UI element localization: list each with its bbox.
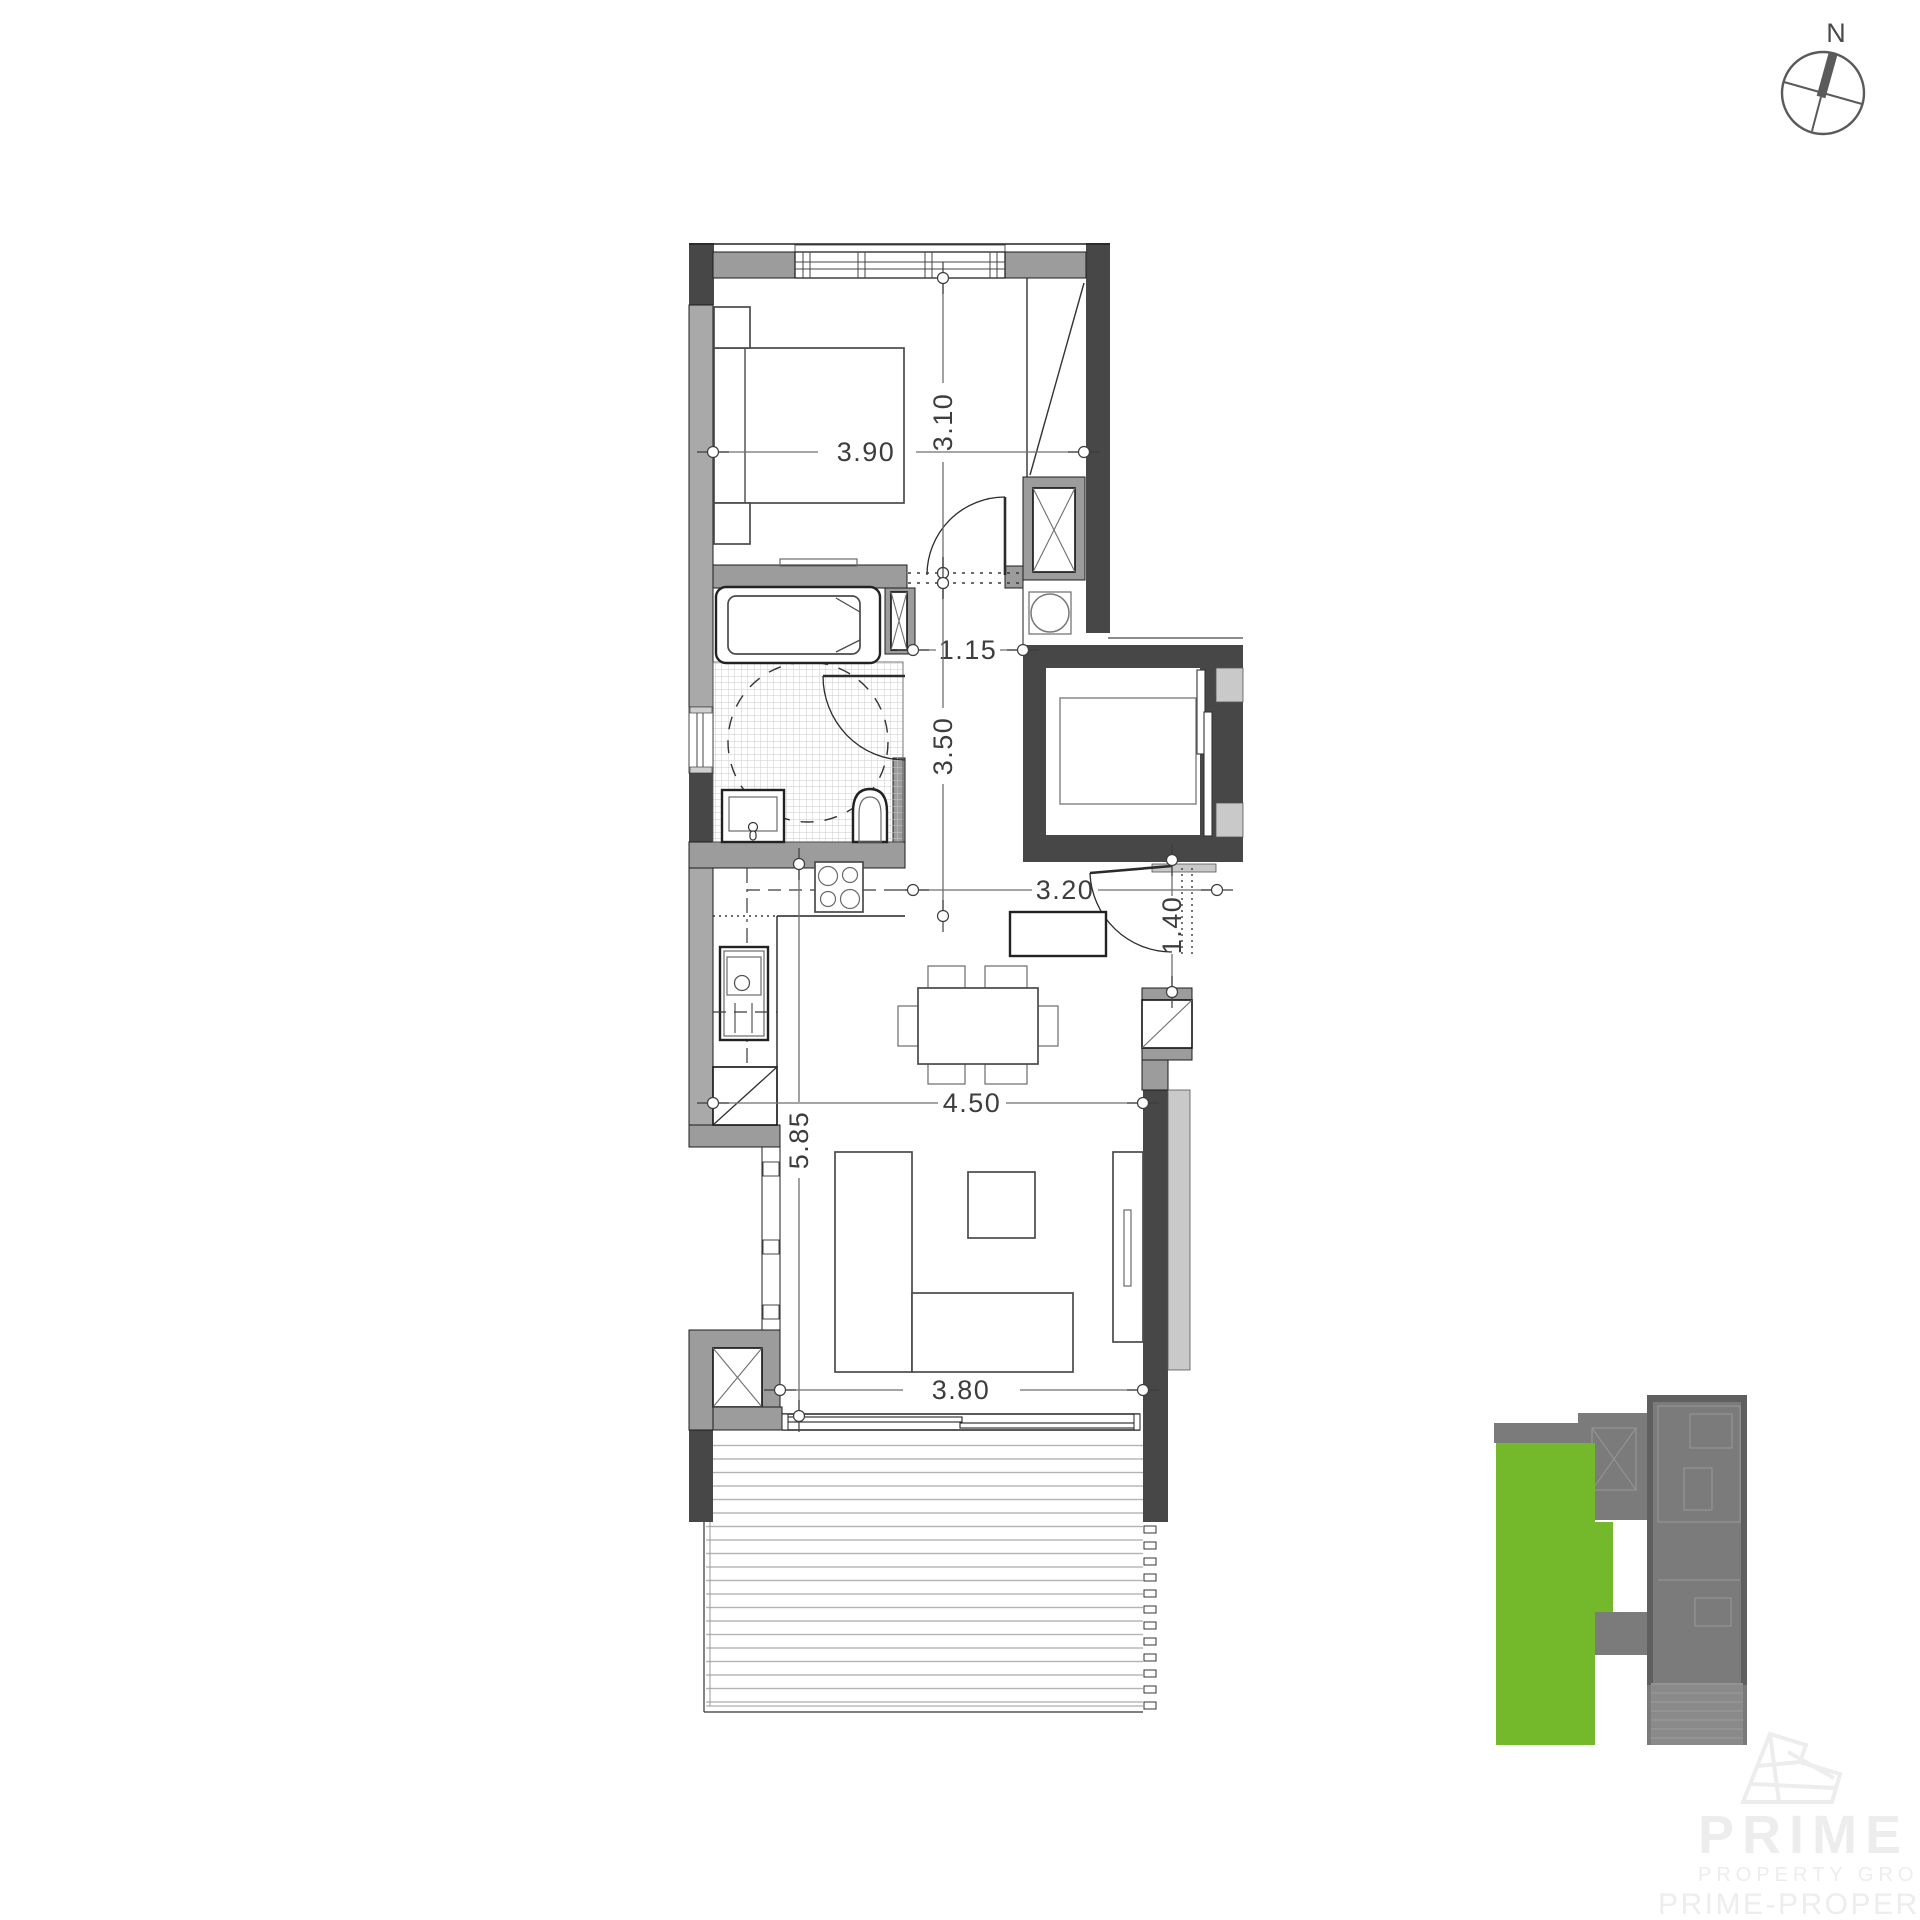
dim-hall-width: 1.15 <box>897 635 1039 665</box>
balcony <box>704 1433 1156 1712</box>
entry-shaft <box>1142 1000 1192 1048</box>
svg-text:3.20: 3.20 <box>1036 875 1095 905</box>
chair <box>928 966 965 988</box>
prime-logo-watermark: PRIME PROPERTY GROUP PRIME-PROPERTY.COM <box>1658 1734 1920 1920</box>
chair <box>985 966 1027 988</box>
prime-building-icon <box>1743 1734 1840 1802</box>
chair <box>1038 1006 1058 1046</box>
toilet <box>853 789 887 842</box>
laundry-niche <box>1023 582 1071 645</box>
dim-hall-depth: 3.50 <box>928 567 958 932</box>
balcony-decking <box>706 1524 1143 1706</box>
elevator-shaft-left <box>713 1348 762 1407</box>
kitchen <box>713 862 913 1125</box>
wardrobe <box>1027 278 1084 477</box>
kitchen-sink <box>713 947 777 1040</box>
sideboard <box>1010 912 1106 956</box>
elevator <box>1023 638 1243 862</box>
unit-locator-map <box>1494 1395 1747 1745</box>
brand-website: PRIME-PROPERTY.COM <box>1658 1888 1920 1920</box>
washing-machine-icon <box>1031 594 1069 632</box>
svg-text:4.50: 4.50 <box>943 1088 1002 1118</box>
floor-plan-sheet: N <box>0 0 1920 1920</box>
neighbor-void <box>762 1147 780 1330</box>
hob-icon <box>815 862 863 912</box>
bathtub <box>716 587 880 663</box>
bed <box>714 348 904 503</box>
sofa <box>835 1152 912 1372</box>
bedroom-window <box>795 245 1005 278</box>
elevator-shaft-small <box>1023 477 1085 580</box>
bathroom-window <box>689 707 713 773</box>
svg-text:3.90: 3.90 <box>837 437 896 467</box>
chair <box>985 1064 1027 1084</box>
balcony-sliding-door <box>713 1407 1140 1430</box>
dining-table <box>918 988 1038 1064</box>
dim-bedroom-depth: 3.10 <box>928 262 958 589</box>
sofa <box>912 1293 1073 1372</box>
svg-text:3.80: 3.80 <box>932 1375 991 1405</box>
duct-shaft <box>891 592 907 650</box>
floor-plan: 3.90 3.10 1.15 3.50 <box>689 243 1243 1712</box>
svg-text:3.50: 3.50 <box>928 717 958 776</box>
dim-living-depth: 5.85 <box>784 848 814 1432</box>
nightstand <box>714 307 750 348</box>
north-label: N <box>1826 18 1846 48</box>
kitchen-closet <box>713 1067 777 1125</box>
svg-text:5.85: 5.85 <box>784 1111 814 1170</box>
coffee-table <box>968 1172 1035 1238</box>
svg-text:1.15: 1.15 <box>939 635 998 665</box>
nightstand <box>714 503 750 544</box>
washbasin <box>722 790 784 842</box>
balcony-decking <box>713 1433 1143 1522</box>
brand-tagline: PROPERTY GROUP <box>1698 1864 1920 1886</box>
svg-text:1.40: 1.40 <box>1157 896 1187 955</box>
brand-name: PRIME <box>1698 1805 1909 1865</box>
chair <box>928 1064 965 1084</box>
bedroom-door-swing <box>908 497 1020 583</box>
compass-icon: N <box>1782 18 1864 134</box>
tv-unit <box>1113 1152 1143 1342</box>
chair <box>898 1006 918 1046</box>
bathroom <box>689 587 905 842</box>
svg-text:3.10: 3.10 <box>928 393 958 452</box>
dim-balcony-opening: 3.80 <box>764 1375 1159 1405</box>
dining-area <box>898 912 1106 1084</box>
